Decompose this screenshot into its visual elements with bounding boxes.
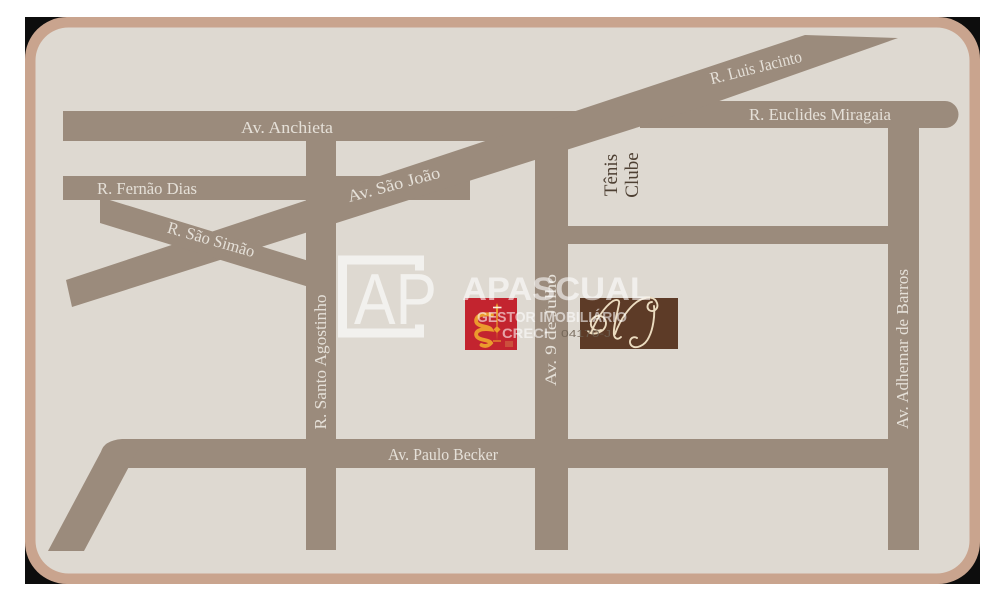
svg-text:APASCUAL: APASCUAL — [462, 271, 651, 307]
svg-text:Clube: Clube — [622, 152, 643, 197]
svg-text:AP: AP — [354, 260, 437, 340]
svg-text:CRECI: CRECI — [502, 325, 548, 341]
svg-text:04170-J: 04170-J — [561, 329, 611, 340]
svg-text:Av. Anchieta: Av. Anchieta — [241, 118, 333, 137]
svg-text:Av. Adhemar de Barros: Av. Adhemar de Barros — [893, 269, 912, 429]
svg-text:GESTOR IMOBILIÁRIO: GESTOR IMOBILIÁRIO — [477, 309, 627, 326]
svg-text:R. Santo Agostinho: R. Santo Agostinho — [311, 295, 330, 430]
svg-text:Tênis: Tênis — [601, 154, 622, 196]
svg-text:Av. Paulo Becker: Av. Paulo Becker — [388, 445, 498, 464]
svg-text:R. Fernão Dias: R. Fernão Dias — [97, 179, 197, 198]
svg-text:R. Euclides Miragaia: R. Euclides Miragaia — [749, 105, 891, 124]
